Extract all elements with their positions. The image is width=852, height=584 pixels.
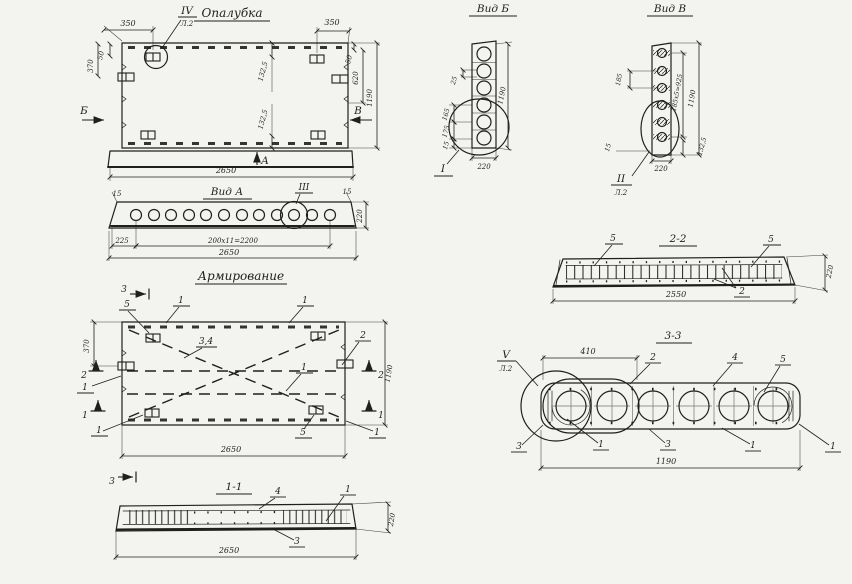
dim-225: 225	[114, 237, 129, 245]
label-5-bottom: 5	[300, 428, 306, 438]
web-lines	[472, 63, 496, 131]
dim-1190: 1190	[496, 86, 508, 106]
dim-620-right: 620	[352, 71, 360, 85]
dim-2650-total: 2650	[218, 248, 239, 257]
view-a-title: Вид А	[210, 186, 243, 198]
detail-callout-ii: II Л.2	[611, 101, 679, 197]
svg-text:2: 2	[738, 287, 745, 297]
view-a: Вид А III 15 15 220	[109, 183, 369, 261]
cut-marker-3-bottom: 3	[109, 472, 136, 487]
dim-2650: 2650	[218, 546, 239, 555]
dim-2550: 2550	[665, 290, 686, 299]
label-5-left: 5	[594, 234, 623, 266]
svg-text:1: 1	[378, 411, 384, 421]
cut-marker-2-right: 2	[362, 360, 384, 381]
detail-ii-label: II	[616, 173, 626, 185]
dim-pitch: 185	[614, 73, 624, 87]
dim-1190-right: 1190	[366, 89, 374, 107]
section-3-3-title: 3-3	[665, 330, 682, 342]
cut-marker-1-left: 1	[82, 400, 105, 421]
dim-132-lower: 132,5	[257, 108, 270, 130]
svg-text:2: 2	[80, 371, 87, 381]
svg-text:3: 3	[121, 285, 127, 295]
svg-text:3: 3	[109, 477, 115, 487]
detail-i-label: I	[440, 163, 446, 175]
dim-220: 220	[825, 264, 836, 280]
view-b-dimensions: 1190 25 165 175 15 220	[441, 42, 512, 171]
stirrup-ladder	[566, 265, 782, 279]
section-3-3-dimensions: 410 1190	[541, 347, 800, 471]
dim-2650: 2650	[220, 445, 241, 454]
label-1-top-right: 1	[302, 296, 308, 306]
dim-15-left: 15	[113, 190, 122, 198]
svg-text:5: 5	[610, 234, 616, 244]
formwork-title: Опалубка	[202, 6, 263, 20]
dim-15-edge: 15	[603, 142, 613, 152]
dim-15: 15	[441, 140, 451, 150]
cut-marker-1-right: 1	[362, 400, 384, 421]
view-v-title: Вид В	[653, 3, 686, 15]
reinforcement-title: Армирование	[197, 269, 284, 283]
svg-text:1: 1	[82, 411, 88, 421]
label-1: 1	[345, 485, 351, 495]
label-4: 4	[731, 353, 738, 363]
dim-1190: 1190	[687, 89, 698, 108]
view-v-dimensions: 185х5=925 1190 132,5 185 15 220	[603, 43, 708, 173]
drawing-canvas: Опалубка IV Л.2 350 3	[0, 0, 852, 584]
label-1-b: 1	[750, 441, 756, 451]
dim-220-height: 220	[356, 209, 364, 224]
label-1-bottom-left: 1	[96, 426, 102, 436]
formwork-plan-view: Опалубка IV Л.2 350 3	[79, 5, 380, 181]
dim-370: 370	[83, 339, 91, 353]
section-1-1-title: 1-1	[226, 481, 243, 493]
label-3: 3	[294, 537, 300, 547]
view-v: Вид В 185х5=925 1190 132,5	[603, 3, 708, 197]
rebar-labels: 5 1 1 3,4 2 1 1 1 5 1	[77, 296, 386, 438]
label-1-left: 1	[82, 383, 88, 393]
svg-text:А: А	[260, 155, 269, 167]
label-1-c: 1	[830, 442, 836, 452]
label-5: 5	[780, 355, 786, 365]
svg-text:V: V	[502, 349, 511, 361]
detail-iv-sheet: Л.2	[180, 20, 194, 28]
lifting-loops	[118, 53, 348, 139]
reinforcement-plan: Армирование 3 5 1 1 3,4	[77, 269, 395, 487]
dim-25: 25	[449, 75, 459, 86]
svg-text:5: 5	[768, 235, 774, 245]
view-marker-a: А	[257, 152, 269, 167]
section-3-3: 3-3 V Л.2 2 4	[497, 330, 841, 471]
view-marker-b: Б	[79, 105, 104, 120]
section-1-1: 1-1 4 1 3 2650 220	[116, 481, 397, 560]
dim-350-right: 350	[324, 18, 339, 27]
detail-callout-iii: III	[281, 183, 314, 229]
dim-220-width: 220	[476, 163, 491, 171]
svg-text:В: В	[353, 105, 362, 117]
svg-text:III: III	[298, 183, 310, 193]
bottom-edge-band	[108, 151, 353, 167]
dim-pitch: 200х11=2200	[207, 237, 258, 245]
label-2: 2	[649, 353, 656, 363]
dim-50-right: 50	[344, 54, 354, 65]
svg-text:Б: Б	[79, 105, 88, 117]
dim-50-left: 50	[96, 50, 106, 61]
label-1-bottom-right: 1	[374, 428, 380, 438]
dim-220: 220	[387, 512, 397, 528]
view-b-title: Вид Б	[476, 3, 509, 15]
cut-marker-3-top: 3	[121, 285, 149, 299]
cut-marker-2-left: 2	[80, 360, 103, 381]
label-3-left: 3	[516, 442, 522, 452]
dim-132-bottom: 132,5	[696, 136, 709, 156]
detail-iv-label: IV	[180, 5, 194, 17]
section-2-2: 2-2 5 5 2 2550	[553, 233, 835, 304]
dim-15-right: 15	[343, 188, 352, 196]
svg-text:Л.2: Л.2	[499, 365, 513, 373]
drawing-sheet: Опалубка IV Л.2 350 3	[0, 0, 852, 584]
label-1-a: 1	[598, 440, 604, 450]
section-2-2-title: 2-2	[669, 233, 687, 245]
dim-132-upper: 132,5	[257, 60, 270, 82]
dim-370-left: 370	[87, 59, 95, 73]
label-4: 4	[274, 487, 281, 497]
label-3-mid: 3	[665, 440, 671, 450]
label-1-top: 1	[178, 296, 184, 306]
label-3-4: 3,4	[199, 337, 214, 347]
dim-220-width: 220	[653, 165, 668, 173]
core-holes-small	[658, 49, 667, 142]
detail-callout-iv: IV Л.2	[145, 5, 198, 69]
dim-410: 410	[579, 347, 595, 356]
dim-1190: 1190	[656, 457, 676, 466]
label-1-mid-right: 1	[301, 363, 307, 373]
dim-350-left: 350	[120, 19, 135, 28]
hole-row	[131, 210, 336, 221]
dim-pitch-total: 185х5=925	[670, 73, 684, 112]
label-2-right: 2	[359, 331, 366, 341]
stirrup-cluster-right	[283, 510, 347, 524]
detail-ii-sheet: Л.2	[614, 189, 628, 197]
label-5-top: 5	[124, 300, 130, 310]
reinforcement-dimensions: 370 1190 2650	[83, 322, 395, 459]
view-b: Вид Б 1190 25	[434, 3, 517, 176]
stirrup-cluster-left	[127, 510, 191, 524]
